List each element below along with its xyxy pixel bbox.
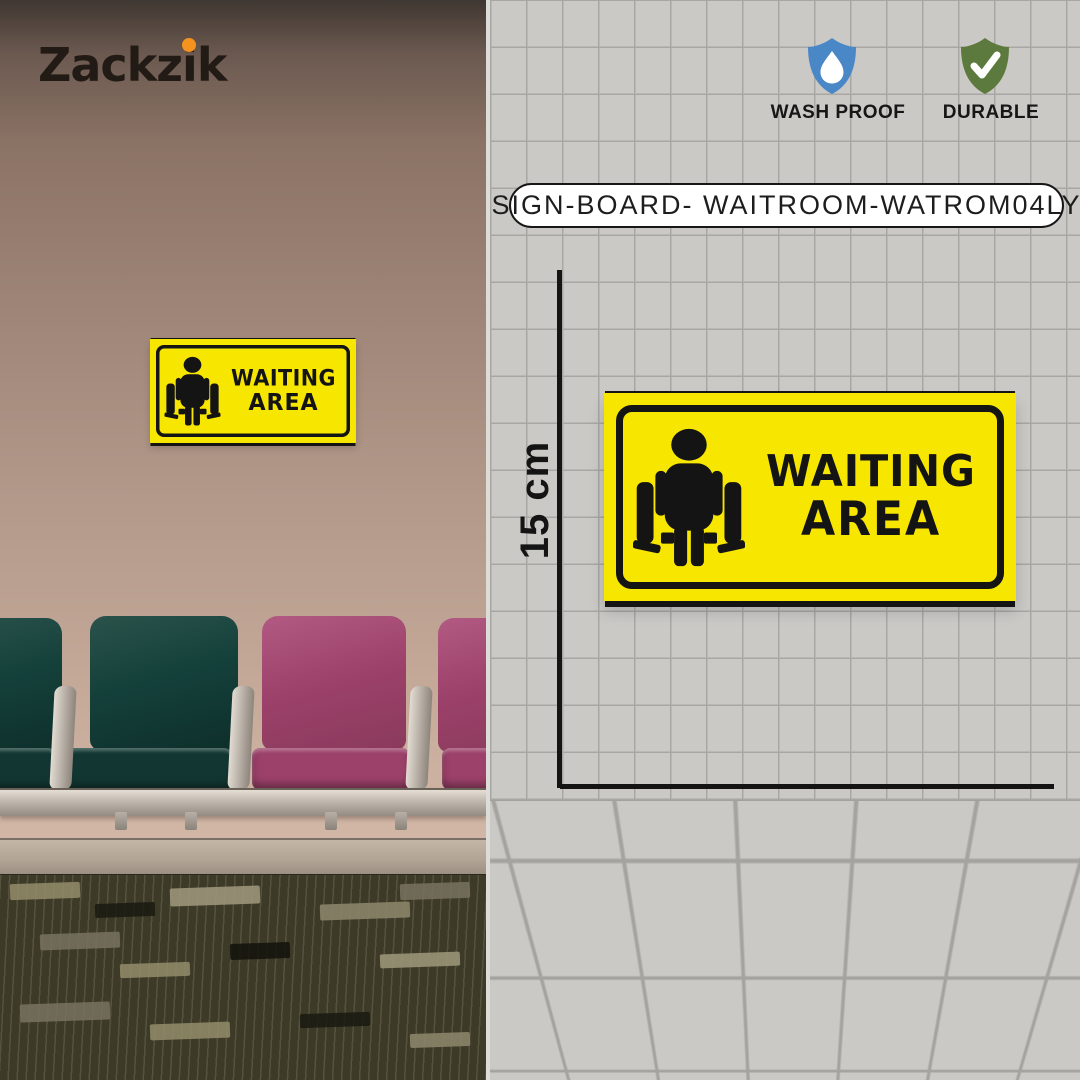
sign-inner-border: WAITING AREA (616, 405, 1004, 589)
carpet-patch (10, 882, 81, 900)
chair-seat (66, 748, 232, 790)
dimension-height-label: 15 cm (513, 440, 557, 560)
carpet-patch (150, 1022, 231, 1041)
carpet-patch (230, 942, 291, 960)
seated-person-icon (165, 355, 221, 428)
spec-panel: WASH PROOF DURABLE SIGN-BOARD- WAITROOM-… (486, 0, 1080, 1080)
dimension-width-label: 30 cm (724, 795, 884, 840)
carpet-patch (400, 882, 471, 900)
chair-seat (0, 748, 56, 790)
baseboard (0, 838, 486, 877)
chair-seat (442, 748, 486, 790)
sku-pill: SIGN-BOARD- WAITROOM-WATROM04LY (509, 183, 1064, 228)
sign-text: WAITING AREA (753, 448, 990, 546)
sign-line1: WAITING (224, 366, 342, 390)
chair-seat (252, 748, 410, 790)
brand-logo-dotted-i: i (182, 38, 197, 92)
water-drop-shield-icon (804, 36, 860, 96)
quantity-label: 1 PIECE (849, 952, 1029, 986)
chair-beam (0, 788, 486, 816)
spec-divider (801, 936, 808, 996)
carpet-patch (380, 952, 460, 969)
waiting-area-sign-product: WAITING AREA (604, 393, 1016, 601)
seated-person-icon (633, 424, 745, 570)
chair-backrest (90, 616, 238, 750)
product-sign-wrap: WAITING AREA (604, 393, 1016, 601)
hanging-sign-icon (897, 866, 981, 948)
product-spec-graphic: Zackzik (0, 0, 1080, 1080)
beam-bracket (185, 812, 197, 830)
chair-backrest (262, 616, 406, 750)
color-swatch-fan-icon (619, 869, 699, 945)
beam-bracket (115, 812, 127, 830)
carpet-patch (170, 885, 261, 906)
carpet-patch (95, 902, 155, 918)
brand-logo-text-pre: Zackz (38, 38, 182, 92)
photo-panel: Zackzik (0, 0, 486, 1080)
sign-inner-border: WAITING AREA (156, 345, 350, 437)
dimension-height-line (557, 270, 562, 788)
sign-text: WAITING AREA (224, 366, 342, 415)
carpet-patch (40, 932, 121, 951)
check-shield-icon (957, 36, 1013, 96)
carpet-patch (410, 1032, 470, 1048)
carpet-floor (0, 875, 486, 1080)
variant-label-line1: LEMON YELLOW (512, 952, 812, 986)
brand-logo: Zackzik (38, 38, 226, 92)
wash-proof-label: WASH PROOF (758, 102, 918, 124)
sign-line1: WAITING (753, 448, 990, 496)
carpet-patch (20, 1001, 111, 1022)
chair-armrest (405, 686, 432, 790)
beam-bracket (325, 812, 337, 830)
carpet-patch (300, 1012, 370, 1028)
chair-armrest (227, 686, 254, 790)
wall-mounted-sign: WAITING AREA (150, 339, 356, 443)
variant-label-line2: WITH BLACK (512, 988, 812, 1022)
grid-floor-background (490, 800, 1080, 1080)
waiting-area-sign-photo: WAITING AREA (150, 339, 356, 443)
beam-bracket (395, 812, 407, 830)
durable-label: DURABLE (911, 102, 1071, 124)
brand-logo-text-post: k (197, 38, 227, 92)
dimension-width-line (560, 784, 1054, 789)
chair-backrest (438, 618, 486, 752)
carpet-patch (320, 901, 411, 920)
sign-line2: AREA (753, 495, 990, 546)
carpet-patch (120, 962, 190, 978)
sign-line2: AREA (224, 390, 342, 415)
